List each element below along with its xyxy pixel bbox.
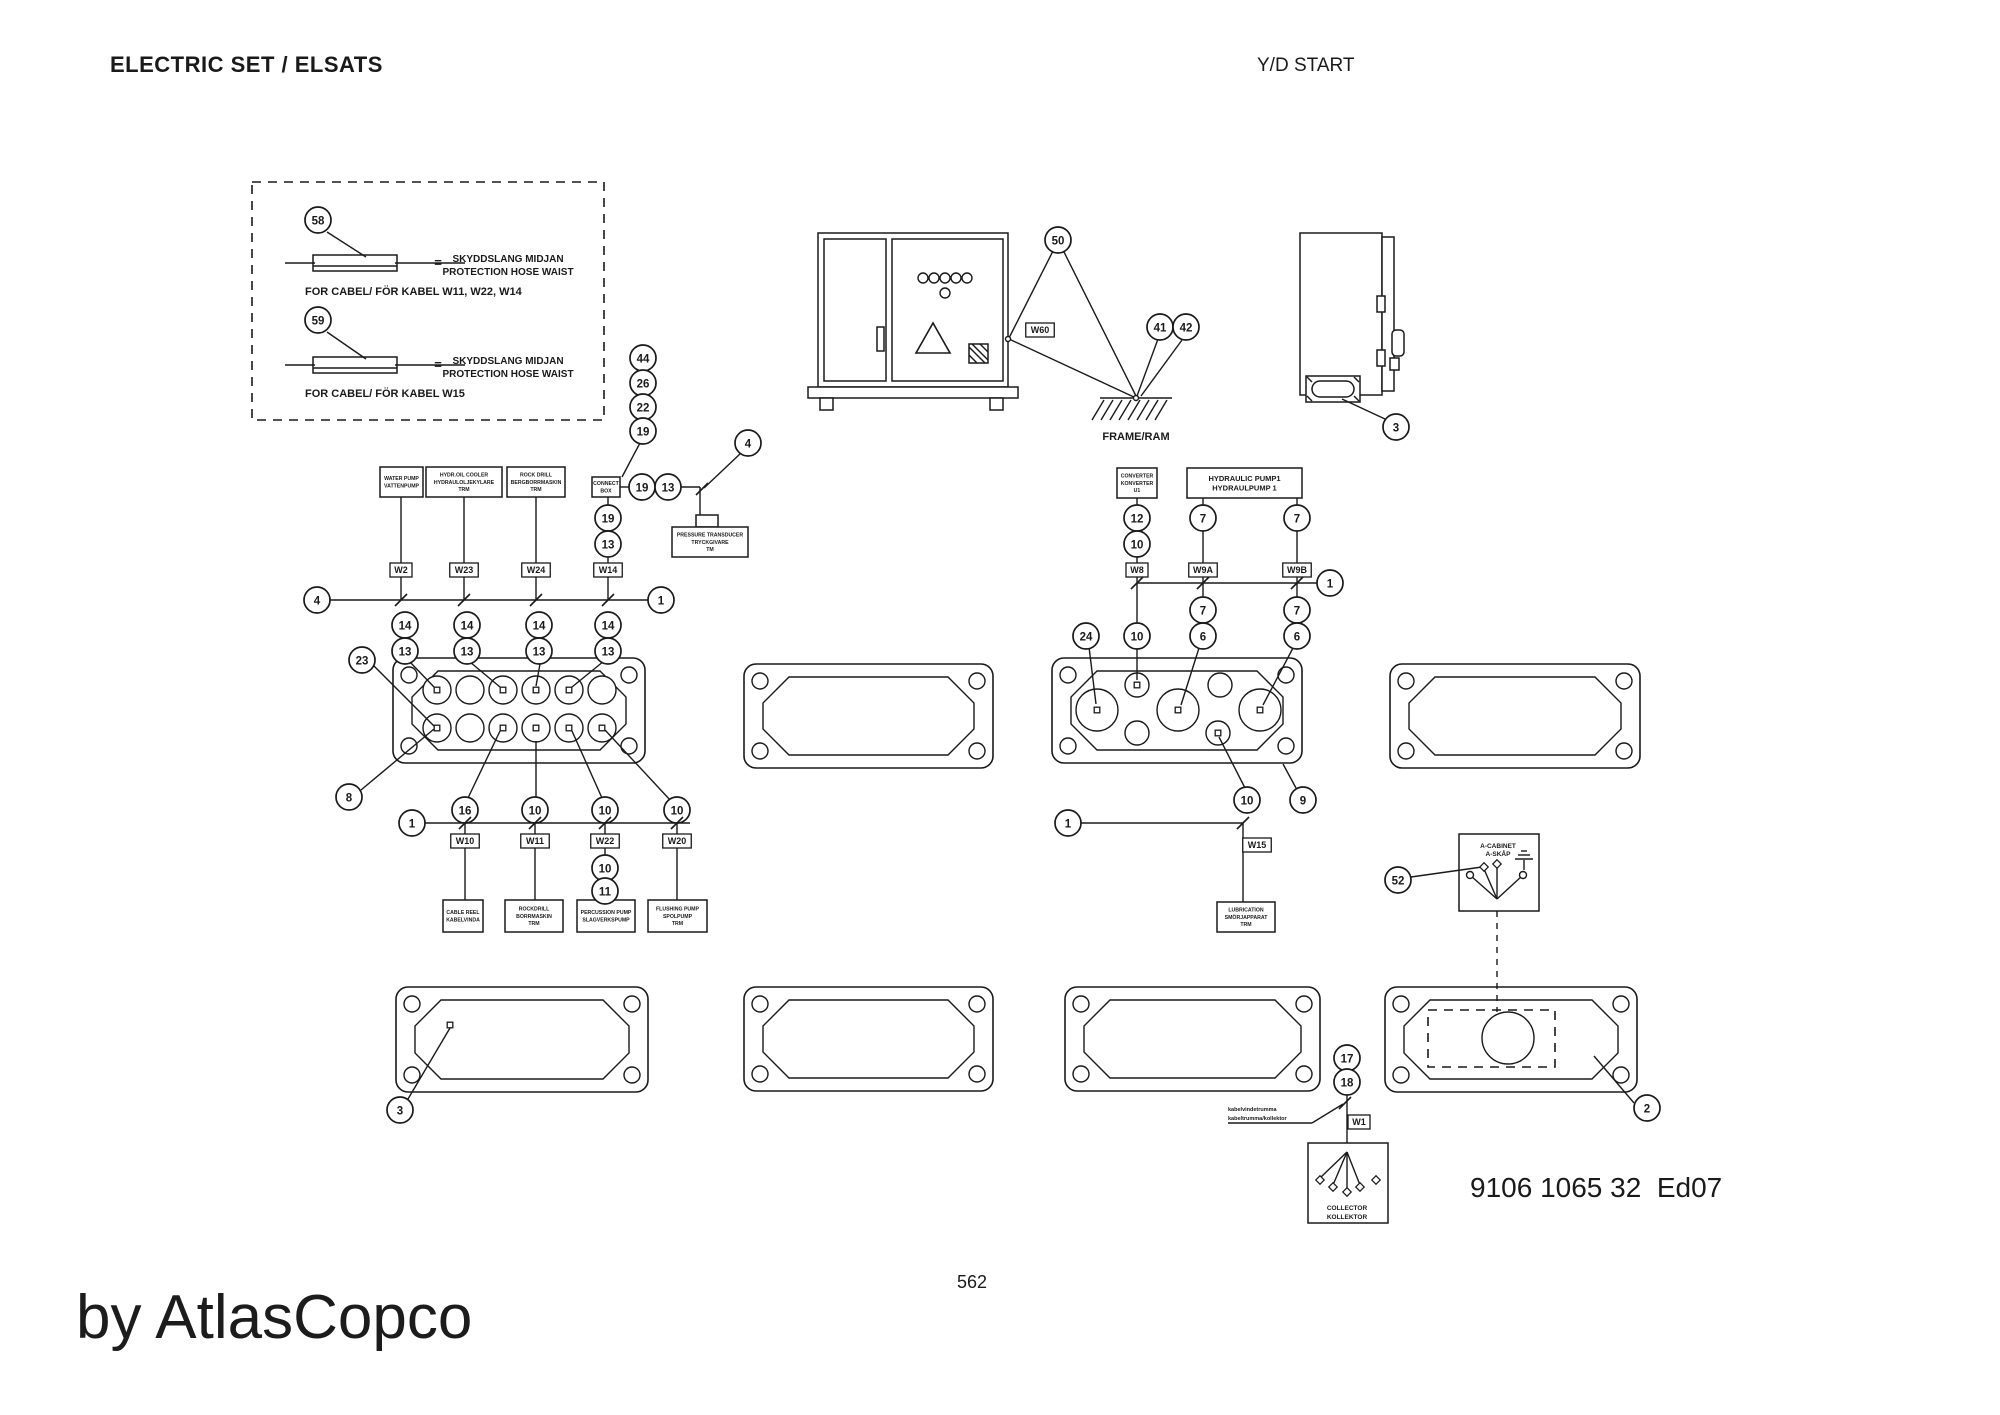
component-box-label: TRM <box>528 921 539 927</box>
component-box-label: HYDR.OIL COOLER <box>440 472 489 478</box>
callout-label: 10 <box>599 863 612 875</box>
bolt-hole <box>969 996 985 1012</box>
callout-label: 7 <box>1294 513 1300 525</box>
wire-tag-label: W14 <box>599 565 618 575</box>
component-box-label: TRM <box>458 487 469 493</box>
outline-rect <box>1392 330 1404 356</box>
detail-circle <box>1006 337 1011 342</box>
callout-label: 9 <box>1300 795 1306 807</box>
wire-tag-label: W15 <box>1248 840 1267 850</box>
callout-label: 4 <box>745 438 752 450</box>
callout-label: 14 <box>461 620 474 632</box>
component-box-label: SPOLPUMP <box>663 914 693 920</box>
component-box-label: CABLE REEL <box>446 910 480 916</box>
callout-label: 10 <box>1241 795 1254 807</box>
callout-label: 10 <box>1131 539 1144 551</box>
cable-hole <box>588 676 616 704</box>
wire-line <box>622 443 640 477</box>
component-box-label: TRM <box>530 487 541 493</box>
wire-line <box>1312 1104 1343 1123</box>
bolt-hole <box>621 667 637 683</box>
component-box-label: FLUSHING PUMP <box>656 906 699 912</box>
diagram-text: A-SKÅP <box>1486 849 1512 858</box>
component-box-label: BORRMASKIN <box>516 914 552 920</box>
bolt-hole <box>969 1066 985 1082</box>
detail-circle <box>929 273 939 283</box>
component-box-label: WATER PUMP <box>384 476 419 482</box>
diagram-text: A-CABINET <box>1480 843 1516 850</box>
component-box-label: BERGBORRMASKIN <box>511 480 562 486</box>
component-box-label: PERCUSSION PUMP <box>581 910 632 916</box>
cable-pin <box>1134 682 1140 688</box>
callout-label: 19 <box>636 482 649 494</box>
bolt-hole <box>1278 738 1294 754</box>
callout-label: 6 <box>1294 631 1300 643</box>
component-box-label: TRYCKGIVARE <box>691 540 729 546</box>
detail-circle <box>1467 872 1474 879</box>
component-box-label: CONNECT <box>593 481 619 487</box>
component-box-label: PRESSURE TRANSDUCER <box>677 532 744 538</box>
bolt-hole <box>752 996 768 1012</box>
wire-tag-label: W9B <box>1287 565 1308 575</box>
watermark: by AtlasCopco <box>76 1282 472 1353</box>
callout-label: 3 <box>1393 422 1399 434</box>
outline-rect <box>820 398 833 410</box>
callout-label: 13 <box>461 646 474 658</box>
callout-label: 19 <box>637 426 650 438</box>
bolt-hole <box>1278 667 1294 683</box>
junction-tick <box>696 483 708 495</box>
diagram-text: PROTECTION HOSE WAIST <box>442 267 573 278</box>
cable-pin <box>1175 707 1181 713</box>
wire-tag-label: W20 <box>668 836 687 846</box>
component-box-label: TRM <box>1240 922 1251 928</box>
outline-rect <box>313 255 397 271</box>
component-box-label: SLAGVERKSPUMP <box>582 918 630 924</box>
callout-label: 14 <box>399 620 412 632</box>
page-number: 562 <box>910 1272 1034 1293</box>
wire-tag-label: W22 <box>596 836 615 846</box>
bolt-hole <box>401 667 417 683</box>
wire-line <box>1342 399 1385 419</box>
component-box-label: LUBRICATION <box>1228 907 1264 913</box>
cable-pin <box>1257 707 1263 713</box>
callout-label: 8 <box>346 792 353 804</box>
callout-label: 10 <box>529 805 542 817</box>
callout-label: 44 <box>637 353 650 365</box>
connector-plate <box>396 987 648 1092</box>
component-box-label: TM <box>706 547 714 553</box>
bolt-hole <box>1613 996 1629 1012</box>
cable-hole <box>456 714 484 742</box>
bolt-hole <box>1398 743 1414 759</box>
cable-pin <box>566 725 572 731</box>
wire-tag-label: W24 <box>527 565 546 575</box>
diagram-text: = <box>434 255 442 270</box>
component-box-label: KONVERTER <box>1121 481 1154 487</box>
callout-label: 11 <box>599 886 612 898</box>
component-box-label: SMÖRJAPPARAT <box>1225 914 1269 921</box>
wire-tag-label: W23 <box>455 565 474 575</box>
component-box-label: ROCKDRILL <box>519 906 550 912</box>
callout-label: 59 <box>312 315 325 327</box>
detail-circle <box>940 273 950 283</box>
outline-rect <box>1377 296 1385 312</box>
callout-label: 16 <box>459 805 472 817</box>
callout-label: 23 <box>356 655 369 667</box>
cable-pin <box>533 687 539 693</box>
cable-pin <box>447 1022 453 1028</box>
callout-label: 26 <box>637 378 650 390</box>
callout-label: 10 <box>671 805 684 817</box>
connector-plate <box>744 987 993 1091</box>
component-box-label: BOX <box>600 489 612 495</box>
callout-label: 13 <box>602 646 615 658</box>
diagram-text: SKYDDSLANG MIDJAN <box>452 254 563 265</box>
wire-line <box>1283 764 1296 788</box>
junction-tick <box>1339 1097 1351 1109</box>
diagram-text: SKYDDSLANG MIDJAN <box>452 356 563 367</box>
bolt-hole <box>1296 996 1312 1012</box>
outline-rect <box>1377 350 1385 366</box>
callout-label: 10 <box>1131 631 1144 643</box>
wire-tag-label: W60 <box>1031 325 1050 335</box>
wire-tag-label: W9A <box>1193 565 1214 575</box>
callout-label: 13 <box>399 646 412 658</box>
outline-rect <box>1312 381 1354 397</box>
cable-pin <box>500 687 506 693</box>
callout-label: 1 <box>1327 578 1334 590</box>
wire-line <box>327 232 366 257</box>
cable-pin <box>1215 730 1221 736</box>
callout-label: 58 <box>312 215 325 227</box>
bolt-hole <box>1393 1067 1409 1083</box>
cable-pin <box>533 725 539 731</box>
detail-circle <box>1520 872 1527 879</box>
outline-rect <box>313 357 397 373</box>
diagram-text: FOR CABEL/ FÖR KABEL W11, W22, W14 <box>305 285 523 298</box>
callout-label: 41 <box>1154 322 1167 334</box>
component-box-label: KABELVINDA <box>446 918 480 924</box>
bolt-hole <box>1073 1066 1089 1082</box>
callout-label: 42 <box>1180 322 1193 334</box>
bolt-hole <box>1296 1066 1312 1082</box>
detail-circle <box>918 273 928 283</box>
callout-label: 1 <box>1065 818 1072 830</box>
connector-plate <box>1065 987 1320 1091</box>
component-box-label: HYDRAULPUMP 1 <box>1212 483 1276 492</box>
component-box-label: HYDRAULOLJEKYLARE <box>434 480 495 486</box>
diagram-text: kabelvindetrumma <box>1228 1107 1278 1113</box>
callout-label: 52 <box>1392 875 1405 887</box>
callout-label: 7 <box>1200 605 1206 617</box>
callout-label: 10 <box>599 805 612 817</box>
callout-label: 1 <box>658 595 665 607</box>
diagram-text: = <box>434 357 442 372</box>
bolt-hole <box>404 1067 420 1083</box>
bolt-hole <box>752 743 768 759</box>
wire-tag-label: W11 <box>526 836 544 846</box>
callout-label: 12 <box>1131 513 1144 525</box>
callout-label: 22 <box>637 402 650 414</box>
wire-line <box>704 453 741 488</box>
detail-circle <box>1482 1012 1534 1064</box>
connector-plate <box>744 664 993 768</box>
cable-pin <box>599 725 605 731</box>
detail-circle <box>1134 396 1139 401</box>
drawing-page: ELECTRIC SET / ELSATS Y/D START W60W2W23… <box>0 0 2000 1415</box>
connector-plate <box>393 658 645 763</box>
diagram-text: FOR CABEL/ FÖR KABEL W15 <box>305 387 465 400</box>
outline-rect <box>990 398 1003 410</box>
doc-number: 9106 1065 32 Ed07 <box>1470 1172 1722 1204</box>
bolt-hole <box>1060 667 1076 683</box>
bolt-hole <box>1073 996 1089 1012</box>
callout-label: 14 <box>533 620 546 632</box>
cable-pin <box>566 687 572 693</box>
bolt-hole <box>1393 996 1409 1012</box>
component-box-label: VATTENPUMP <box>384 484 420 490</box>
bolt-hole <box>1616 673 1632 689</box>
wire-tag-label: W2 <box>394 565 408 575</box>
component-box-label: HYDRAULIC PUMP1 <box>1208 474 1280 483</box>
diagram-text: kabeltrumma/kollektor <box>1228 1116 1288 1122</box>
outline-rect <box>1300 233 1382 395</box>
callout-label: 3 <box>397 1105 403 1117</box>
bolt-hole <box>1060 738 1076 754</box>
detail-circle <box>962 273 972 283</box>
wire-tag-label: W10 <box>456 836 475 846</box>
callout-label: 6 <box>1200 631 1206 643</box>
outline-rect <box>1390 358 1399 370</box>
bolt-hole <box>969 743 985 759</box>
bolt-hole <box>621 738 637 754</box>
callout-label: 1 <box>409 818 416 830</box>
cable-hole <box>1125 721 1149 745</box>
callout-label: 19 <box>602 513 615 525</box>
callout-label: 13 <box>533 646 546 658</box>
component-box-label: TRM <box>672 921 683 927</box>
callout-label: 4 <box>314 595 321 607</box>
callout-label: 17 <box>1341 1053 1354 1065</box>
bolt-hole <box>404 996 420 1012</box>
callout-label: 7 <box>1294 605 1300 617</box>
detail-circle <box>940 288 950 298</box>
callout-label: 50 <box>1052 235 1065 247</box>
callout-label: 24 <box>1080 631 1093 643</box>
outline-rect <box>696 515 718 527</box>
outline-rect <box>824 239 886 381</box>
wire-line <box>1064 252 1136 396</box>
wire-tag-label: W1 <box>1352 1117 1366 1127</box>
diagram-text: PROTECTION HOSE WAIST <box>442 369 573 380</box>
bolt-hole <box>752 673 768 689</box>
component-box-label: ROCK DRILL <box>520 472 553 478</box>
bolt-hole <box>624 996 640 1012</box>
callout-label: 13 <box>662 482 675 494</box>
callout-label: 2 <box>1644 1103 1650 1115</box>
diagram-text: KOLLEKTOR <box>1327 1214 1368 1221</box>
bolt-hole <box>624 1067 640 1083</box>
detail-circle <box>951 273 961 283</box>
diagram-text: FRAME/RAM <box>1102 431 1169 443</box>
outline-rect <box>877 327 884 351</box>
outline-rect <box>808 387 1018 398</box>
cable-hole <box>1208 673 1232 697</box>
callout-label: 14 <box>602 620 615 632</box>
wire-line <box>327 332 366 359</box>
outline-rect <box>969 344 988 363</box>
bolt-hole <box>752 1066 768 1082</box>
wire-line <box>1009 339 1136 398</box>
bolt-hole <box>969 673 985 689</box>
cable-pin <box>434 687 440 693</box>
cable-hole <box>456 676 484 704</box>
connector-plate <box>1390 664 1640 768</box>
cable-pin <box>434 725 440 731</box>
wire-tag-label: W8 <box>1130 565 1144 575</box>
bolt-hole <box>1398 673 1414 689</box>
callout-label: 18 <box>1341 1077 1354 1089</box>
callout-label: 13 <box>602 539 615 551</box>
diagram-text: COLLECTOR <box>1327 1205 1368 1212</box>
bolt-hole <box>1616 743 1632 759</box>
component-box-label: CONVERTER <box>1121 473 1154 479</box>
component-box-label: U1 <box>1134 488 1141 494</box>
cable-pin <box>500 725 506 731</box>
callout-label: 7 <box>1200 513 1206 525</box>
cable-pin <box>1094 707 1100 713</box>
